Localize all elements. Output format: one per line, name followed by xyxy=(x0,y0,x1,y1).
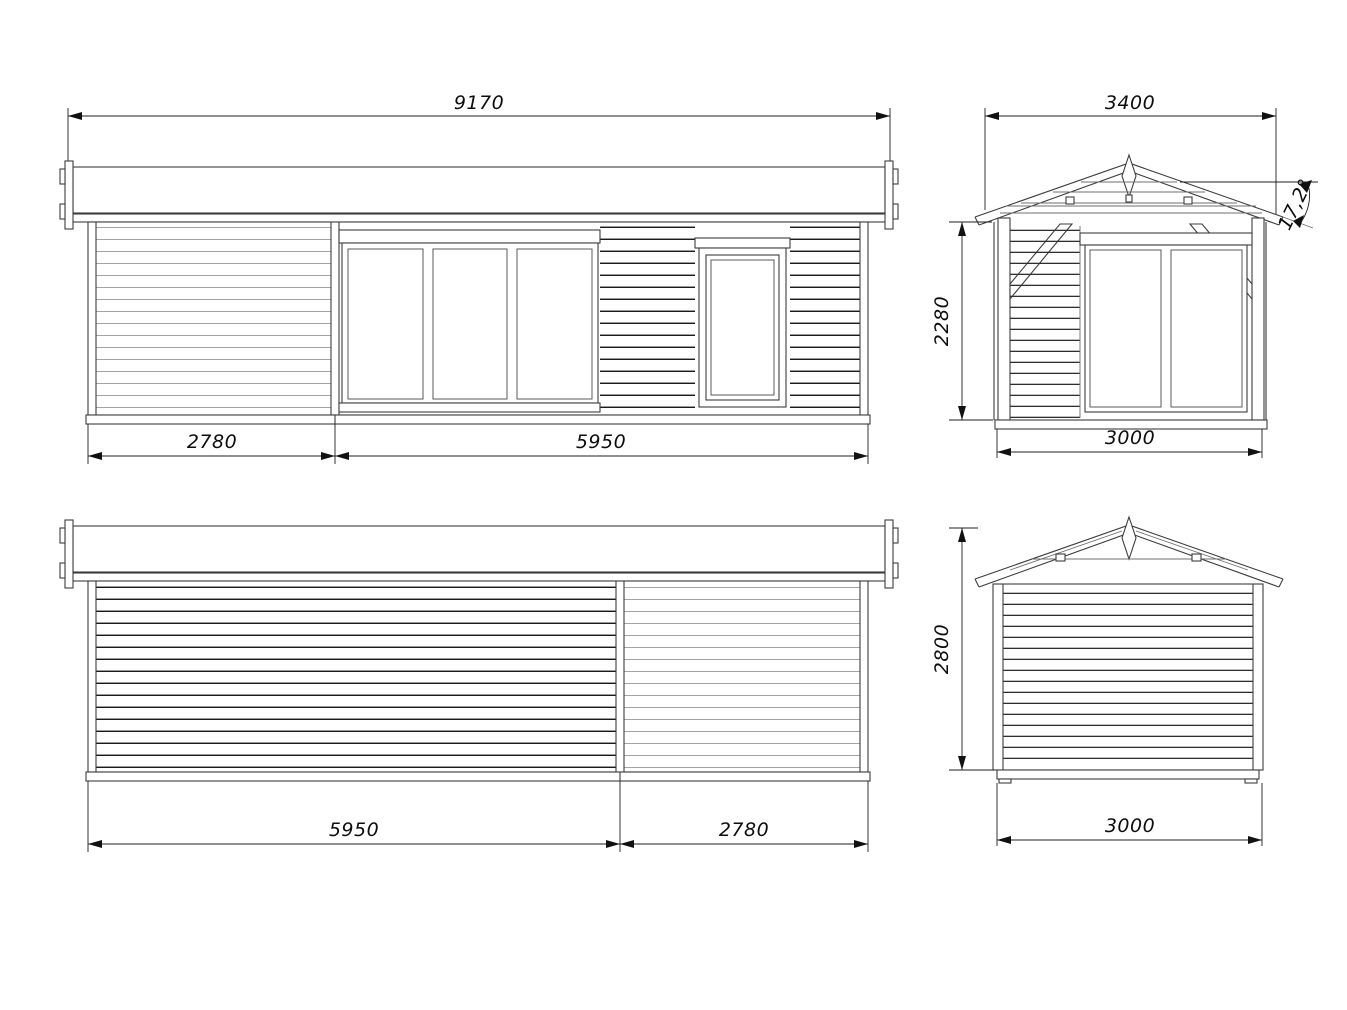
drawing-canvas: 9170 xyxy=(0,0,1347,1010)
rear-siding-annex xyxy=(624,584,860,768)
dimension-front-sections: 2780 5950 xyxy=(88,424,868,464)
porch-post-left xyxy=(998,218,1010,420)
dim-label-front-left-section: 2780 xyxy=(187,431,237,453)
front-roof xyxy=(60,161,898,229)
sliding-door-panel-3 xyxy=(517,249,592,399)
dimension-rear-gable-base-width: 3000 xyxy=(997,783,1262,846)
dim-label-rear-left-section: 5950 xyxy=(329,819,379,841)
front-siding-mid xyxy=(600,225,695,411)
rear-gable-wall xyxy=(993,584,1263,770)
dimension-side-wall-height: 2280 xyxy=(931,222,993,420)
front-glazed-door xyxy=(695,238,790,407)
front-sliding-door xyxy=(339,230,600,412)
sliding-door-panel-2 xyxy=(433,249,507,399)
side-sliding-door-profile xyxy=(1080,233,1252,412)
side-elevation-rear-view: 2800 3000 xyxy=(931,517,1283,846)
dim-label-side-wall-height: 2280 xyxy=(931,296,953,346)
front-base xyxy=(86,415,870,424)
front-elevation-view: 9170 xyxy=(60,92,898,464)
purlin-end-rear-right xyxy=(1192,554,1201,561)
dim-label-rear-gable-base-width: 3000 xyxy=(1105,815,1155,837)
dimension-rear-sections: 5950 2780 xyxy=(88,781,868,852)
rear-wall xyxy=(88,581,868,772)
dim-label-side-base-width: 3000 xyxy=(1105,427,1155,449)
purlin-end-left xyxy=(1066,197,1074,204)
sliding-door-panel-1 xyxy=(348,249,423,399)
dim-label-rear-right-section: 2780 xyxy=(719,819,769,841)
roof-finial-rear xyxy=(1122,517,1136,559)
purlin-end-right xyxy=(1184,197,1192,204)
rear-gable-base xyxy=(997,770,1259,779)
front-roof-bargeboard-left xyxy=(65,161,73,229)
front-siding-right xyxy=(790,225,860,411)
porch-post-right xyxy=(1252,218,1264,420)
dim-label-roof-angle: 17,2° xyxy=(1274,175,1318,233)
rear-roof-bargeboard-left xyxy=(65,520,73,588)
dim-label-front-total: 9170 xyxy=(454,92,504,114)
front-roof-bargeboard-right xyxy=(885,161,893,229)
dim-label-rear-gable-height: 2800 xyxy=(931,624,953,674)
roof-finial xyxy=(1122,155,1136,197)
rear-gable-siding xyxy=(1003,587,1253,767)
dim-label-front-right-section: 5950 xyxy=(576,431,626,453)
purlin-end-rear-left xyxy=(1056,554,1065,561)
rear-elevation-view: 5950 2780 xyxy=(60,520,898,852)
rear-gable-roof xyxy=(975,517,1283,587)
rear-roof xyxy=(60,520,898,588)
rear-siding-main xyxy=(96,584,616,768)
side-wall-siding xyxy=(1010,226,1080,418)
side-elevation-porch-view: 3400 xyxy=(931,92,1318,458)
rear-base xyxy=(86,772,870,781)
dimension-side-base-width: 3000 xyxy=(997,427,1262,458)
dimension-rear-gable-height: 2800 xyxy=(931,528,995,770)
front-siding-annex xyxy=(96,225,331,411)
side-roof xyxy=(975,155,1283,225)
rear-roof-bargeboard-right xyxy=(885,520,893,588)
dim-label-side-roof-width: 3400 xyxy=(1105,92,1155,114)
